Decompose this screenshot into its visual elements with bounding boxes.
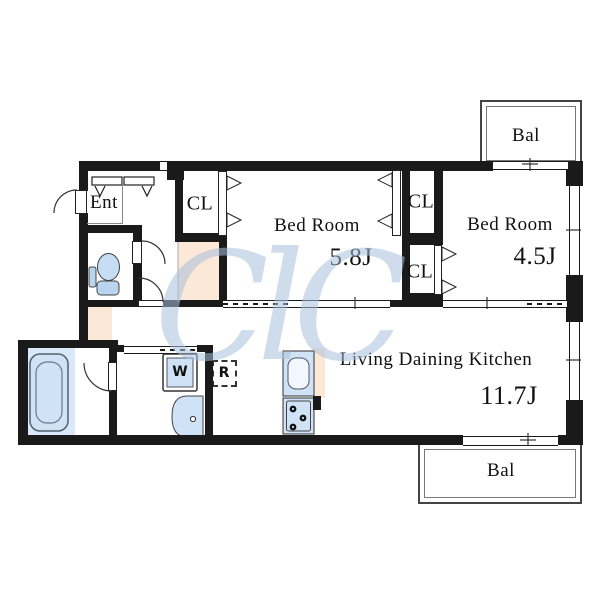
wall-left [79, 161, 88, 191]
wall-washroom-ldk-divider [205, 345, 213, 445]
washroom-sliding-door [160, 346, 197, 354]
hallway-flooring [178, 242, 220, 302]
wall-right [566, 275, 583, 322]
wall-closet-left [175, 161, 183, 242]
wall-toilet-top [79, 225, 140, 233]
wall-kitchen-stub [313, 396, 321, 410]
window-bedroom2 [569, 186, 580, 275]
wall-bath-wash-divider [109, 391, 117, 435]
wall-bottom [18, 435, 463, 445]
wall-washroom-top [117, 345, 124, 352]
wall-bath-wash-divider [109, 348, 117, 362]
entrance-label: Ent [90, 192, 118, 214]
toilet [89, 254, 120, 296]
wash-basin [172, 396, 203, 437]
window-ldk [569, 322, 580, 400]
balcony-bottom-label: Bal [487, 460, 515, 482]
wall-top [79, 161, 487, 171]
wall-toilet-right [133, 225, 142, 241]
wall-middle [163, 300, 223, 307]
bedroom1-size: 5.8J [330, 244, 373, 272]
ldk-size: 11.7J [480, 381, 537, 411]
wall-closet-column-right [434, 161, 443, 245]
wall-closet-right [219, 161, 227, 171]
bathroom-door-leaf [108, 362, 117, 391]
wall-closet-column-right [434, 295, 443, 307]
kitchen-counter-top [313, 348, 325, 398]
closet-mid-bottom-folding-door [434, 245, 442, 295]
window-balcony-bottom [463, 436, 558, 446]
bedroom1-label: Bed Room [274, 215, 360, 237]
closet-left-folding-door [218, 171, 227, 236]
entry-door-arc [54, 190, 77, 213]
washroom-opening [124, 346, 160, 354]
washing-machine-label: W [172, 364, 187, 380]
wall-left [79, 213, 88, 348]
bathroom-wet-floor [28, 348, 75, 435]
bedroom2-size: 4.5J [514, 243, 557, 271]
sliding-partition-bedroom2 [443, 300, 527, 308]
corridor-door-arc [139, 278, 163, 302]
window-balcony-top [493, 161, 568, 170]
refrigerator-label: R [219, 365, 230, 381]
closet-mid-top-folding-door [392, 170, 401, 236]
wall-middle [79, 300, 140, 307]
wall-bath-left [18, 340, 28, 445]
corridor-door-leaf [138, 300, 164, 307]
floor-plan: Ent CL Bed Room 5.8J CL CL Bed Room 4.5J… [0, 0, 600, 600]
ldk-label: Living Daining Kitchen [340, 349, 533, 371]
entry-door-leaf [75, 190, 87, 214]
wall-right [566, 161, 583, 186]
sliding-partition-bedroom1 [290, 300, 390, 308]
stove-burner-icon [290, 406, 307, 431]
wall-notch [160, 162, 167, 170]
wall-bottom [558, 435, 583, 445]
closet-mid-bottom-label: CL [407, 261, 434, 284]
wall-bath-top [18, 340, 118, 348]
closet-left-label: CL [187, 193, 214, 216]
sliding-door-bedroom1 [223, 300, 290, 308]
toilet-door-leaf [132, 241, 142, 264]
bedroom2-label: Bed Room [467, 214, 553, 236]
sliding-door-bedroom2 [527, 300, 567, 308]
toilet-door-arc [142, 241, 165, 264]
balcony-top-label: Bal [512, 125, 540, 147]
kitchen-unit [283, 351, 314, 434]
closet-mid-top-label: CL [408, 191, 435, 214]
wall-washroom-top [197, 345, 205, 352]
wall-corridor-bedroom [219, 236, 227, 307]
